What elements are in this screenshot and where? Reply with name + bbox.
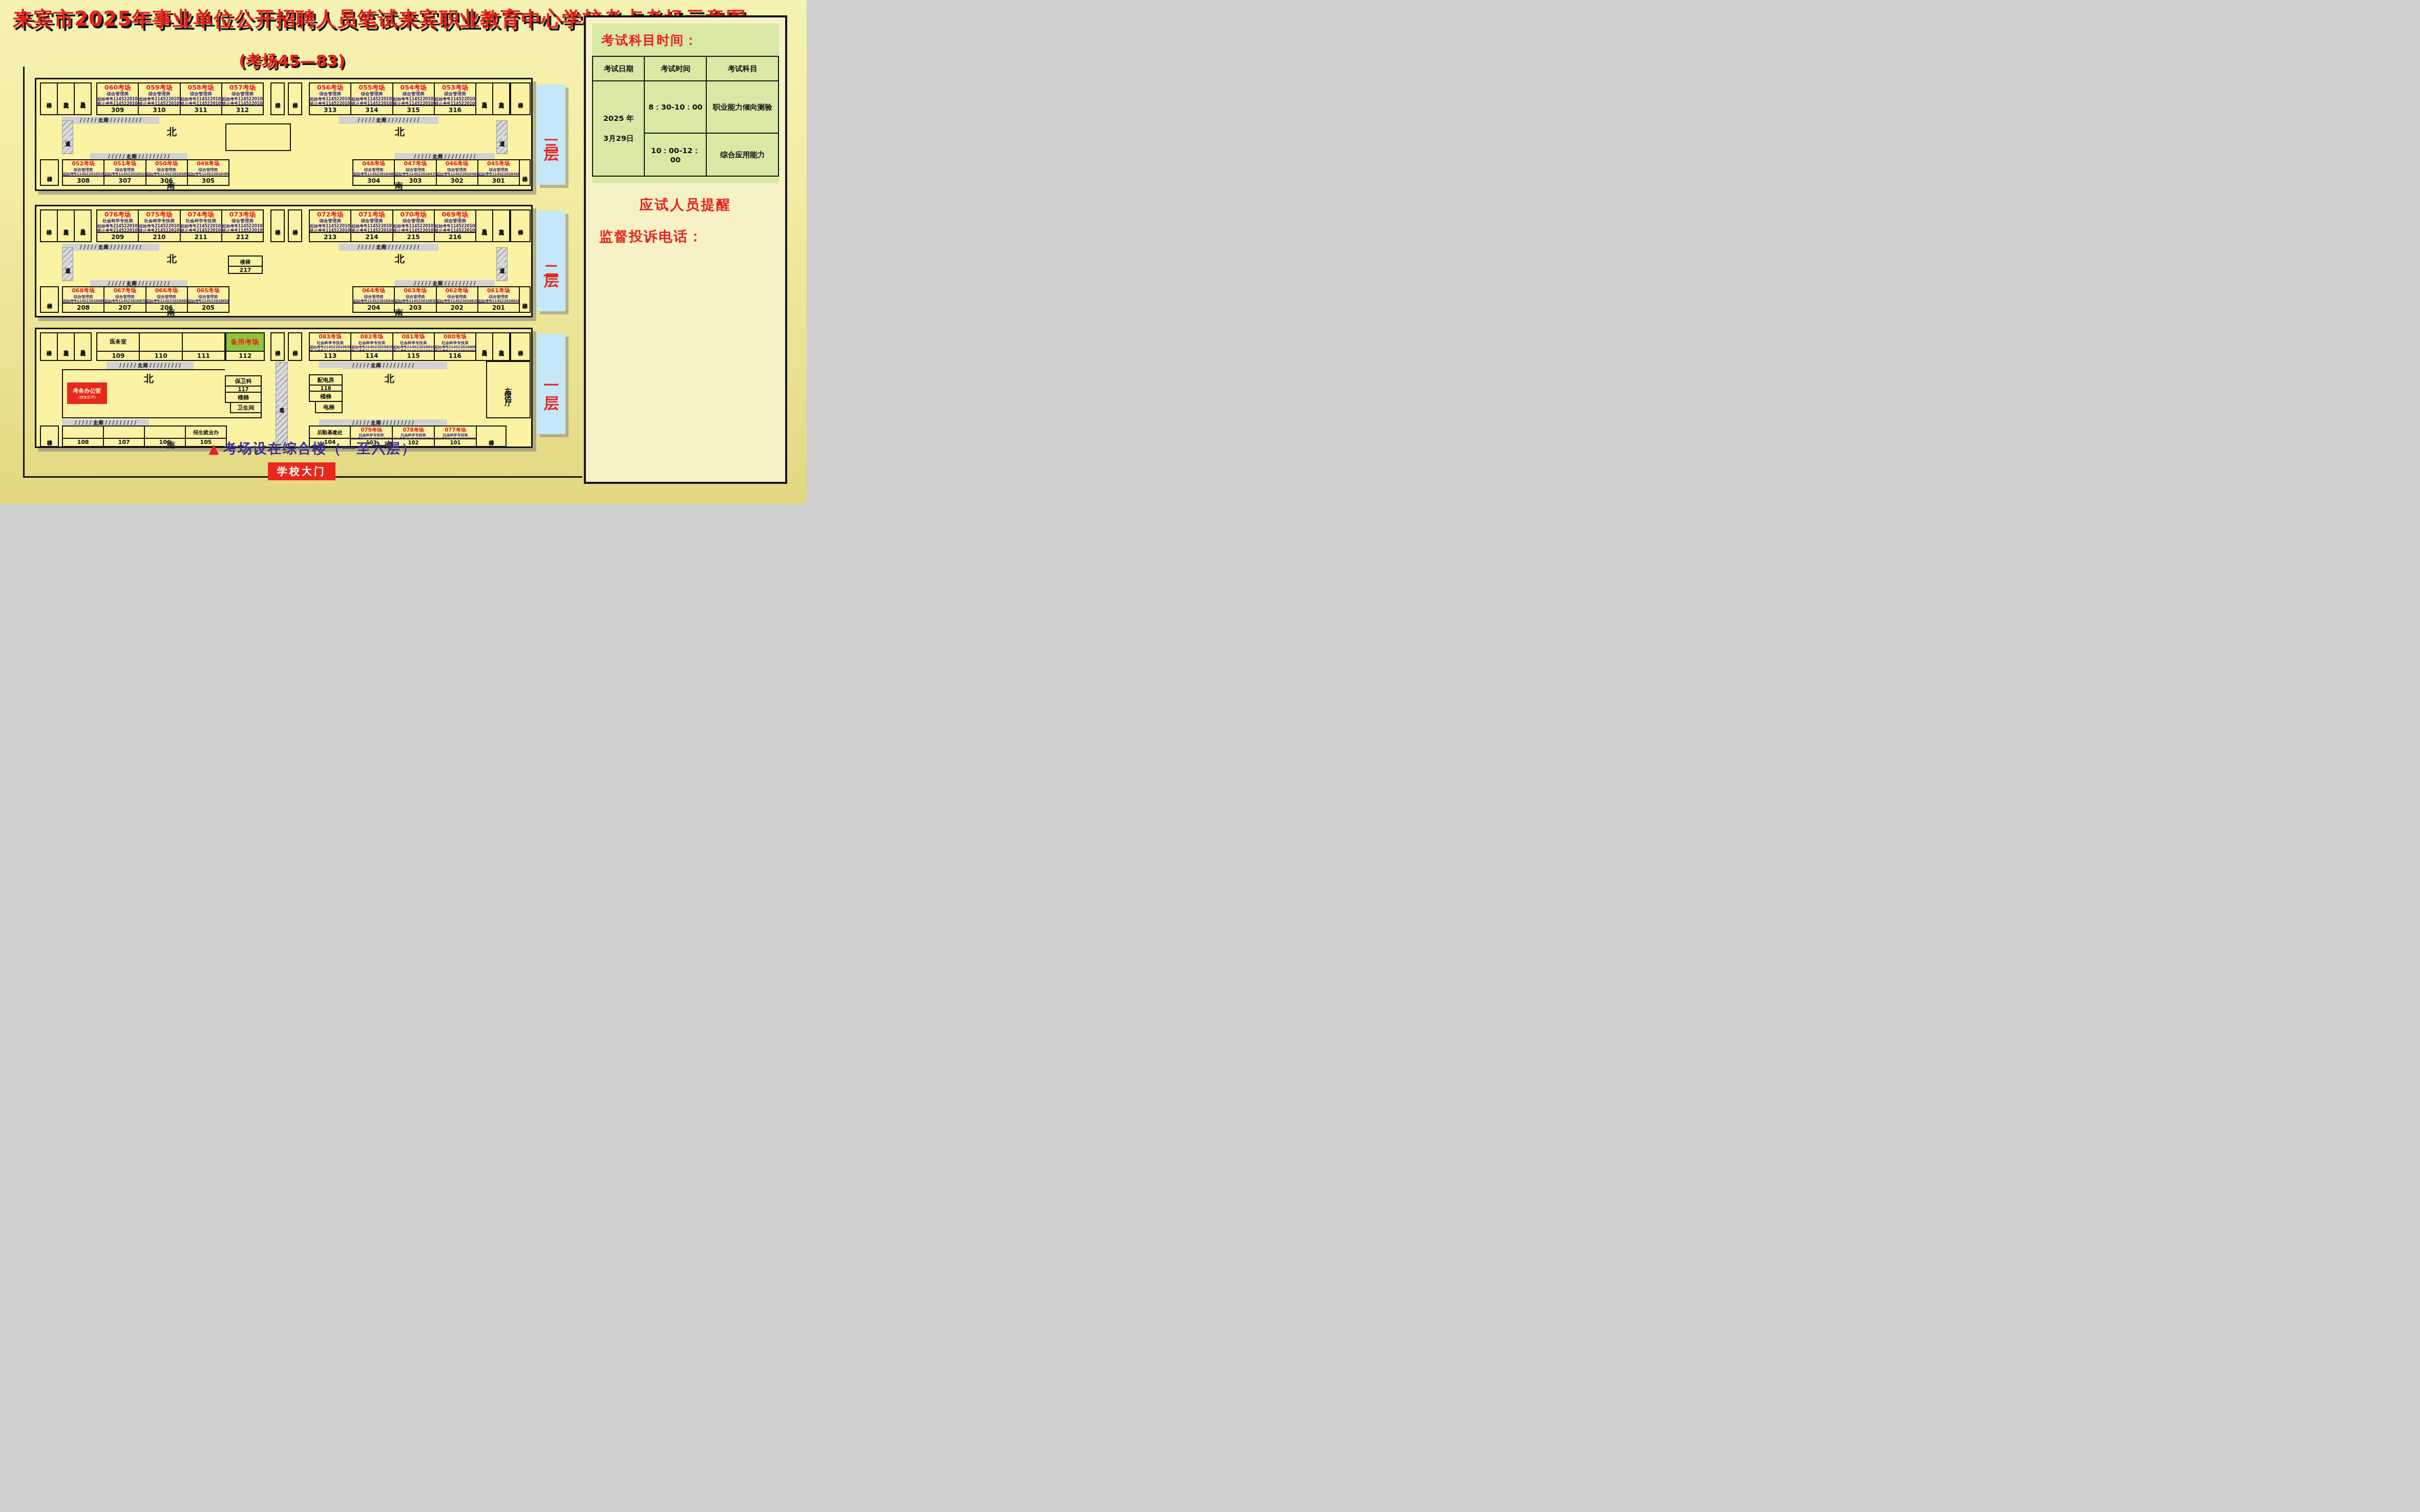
stairs-cell: 楼梯 (270, 332, 285, 361)
exam-room: 067考场 综合管理类 起始考号1145220106701 终止考号114522… (103, 286, 146, 313)
exam-room: 048考场 综合管理类 起始考号1145220104801 终止考号114522… (352, 159, 395, 186)
passage-label: 通道 (499, 136, 504, 139)
room-title: 070考场 (393, 211, 434, 218)
exam-room: 064考场 综合管理类 起始考号1145220106401 终止考号114522… (352, 286, 395, 313)
room-category: 社会科学专技类 (97, 218, 138, 223)
north-label: 北 (167, 252, 177, 266)
room-start-number: 起始考号2145220108101 (393, 345, 434, 349)
session-2-subject: 综合应用能力 (706, 133, 778, 176)
exam-date-cell: 2025 年 3月29日 (593, 81, 644, 176)
room-title: 066考场 (146, 288, 187, 294)
plain-room-label: 医务室 (97, 334, 139, 351)
toilet-label: 卫生间 (230, 402, 262, 413)
stairs-label: 楼梯 (275, 225, 280, 226)
exam-room-info: 065考场 综合管理类 起始考号1145220106501 终止考号114522… (188, 287, 228, 303)
exam-room: 052考场 综合管理类 起始考号1145220105201 终止考号114522… (62, 159, 104, 186)
corridor-strip: / / / / / 走廊 / / / / / / / / / (62, 117, 159, 124)
floor-1-tab-label: 一层 (541, 377, 562, 391)
stairs-cell: 楼梯 (270, 82, 285, 115)
toilet-male-cell: 男卫生间 (74, 209, 92, 242)
plain-room: 108 (62, 425, 104, 447)
stairs-label: 楼梯 (518, 225, 523, 226)
passage-shaft: 通道 (496, 120, 508, 154)
room-start-number: 起始考号1145220105301 (435, 97, 475, 102)
passage-shaft: 通道 (496, 247, 508, 281)
room-title: 072考场 (310, 211, 350, 218)
exam-office-box: 考务办公室 (西报告厅) (67, 382, 107, 404)
exam-room: 071考场 综合管理类 起始考号1145220107101 终止考号114522… (350, 209, 393, 242)
stairs-cell: 楼梯 (40, 82, 58, 115)
room-start-number: 起始考号1145220105701 (222, 97, 263, 102)
passage-label: 通道 (65, 263, 70, 266)
room-door-number: 113 (310, 351, 350, 360)
exam-room-info: 072考场 综合管理类 起始考号1145220107201 终止考号114522… (310, 210, 350, 232)
page-title: 来宾市2025年事业单位公开招聘人员笔试来宾职业教育中心学校考点考场示意图 (13, 5, 571, 33)
room-title: 064考场 (353, 288, 394, 294)
room-start-number: 起始考号1145220104901 (188, 172, 228, 176)
plain-room-label (183, 334, 224, 351)
room-start-number: 起始考号1145220106401 (353, 299, 394, 303)
exam-office-sublabel: (西报告厅) (67, 395, 107, 400)
exam-room: 054考场 综合管理类 起始考号1145220105401 终止考号114522… (392, 82, 435, 115)
room-door-number: 312 (222, 105, 263, 114)
room-end-number: 终止考号1145220105430 (393, 101, 434, 105)
room-start-number: 起始考号1145220106701 (104, 299, 145, 303)
room-title: 053考场 (435, 84, 475, 91)
room-door-number: 216 (435, 232, 475, 241)
room-door-number: 313 (310, 105, 350, 114)
exam-room-info: 070考场 综合管理类 起始考号1145220107001 终止考号114522… (393, 210, 434, 232)
room-category: 社会科学专技类 (139, 218, 179, 223)
room-start-number: 起始考号1145220107001 (393, 224, 434, 229)
passage-shaft: 通道 (62, 120, 73, 154)
room-start-number: 起始考号1145220105501 (351, 97, 392, 102)
room-end-number: 终止考号1145220107309 (222, 228, 263, 232)
f3-south-right-rooms: 048考场 综合管理类 起始考号1145220104801 终止考号114522… (352, 159, 520, 186)
toilet-female-cell: 女卫生间 (492, 209, 510, 242)
room-door-number: 211 (181, 232, 221, 241)
session-1-subject: 职业能力倾向测验 (706, 81, 778, 133)
school-gate-box: 学校大门 (268, 462, 335, 480)
room-door-number: 201 (478, 303, 519, 312)
room-category: 综合管理类 (146, 294, 187, 299)
room-title: 057考场 (222, 84, 263, 91)
north-label: 北 (167, 125, 177, 139)
corridor-strip: / / / / / 走廊 / / / / / / / / / (339, 117, 438, 124)
exam-room-info: 083考场 社会科学专技类 起始考号2145220108301 终止考号2145… (310, 333, 350, 351)
floor-2-tab-label: 二层 (541, 254, 562, 268)
plain-room-info: 后勤基建处 (310, 427, 350, 438)
exam-room: 061考场 综合管理类 起始考号1145220106101 终止考号114522… (477, 286, 520, 313)
exam-date-day: 3月29日 (595, 134, 642, 143)
f2-south-right-rooms: 064考场 综合管理类 起始考号1145220106401 终止考号114522… (352, 286, 520, 313)
room-door-number: 114 (351, 351, 392, 360)
stairs-label: 楼梯 (292, 98, 298, 99)
room-end-number: 终止考号1145220105630 (310, 101, 350, 105)
stairs-cell: 楼梯 (510, 209, 531, 242)
f1-north-plain-rooms: 医务室 109 110 111 (96, 332, 225, 361)
exam-room: 083考场 社会科学专技类 起始考号2145220108301 终止考号2145… (309, 332, 351, 361)
room-door-number: 214 (351, 232, 392, 241)
exam-room: 069考场 综合管理类 起始考号1145220106901 终止考号114522… (434, 209, 476, 242)
room-category: 综合管理类 (222, 91, 263, 96)
room-title: 048考场 (353, 161, 394, 167)
toilet-female-label: 女卫生间 (64, 225, 69, 227)
building-floor-3: 楼梯 女卫生间 男卫生间 060考场 综合管理类 起始考号11452201060… (35, 78, 533, 191)
center-stairs-label: 楼梯 (228, 255, 263, 267)
room-category: 综合管理类 (437, 167, 477, 172)
room-start-number: 起始考号1145220106001 (97, 97, 138, 102)
exam-room: 055考场 综合管理类 起始考号1145220105501 终止考号114522… (350, 82, 393, 115)
room-category: 综合管理类 (188, 294, 228, 299)
floor-3-tab-label: 三层 (541, 127, 562, 142)
room-door-number: 107 (104, 438, 144, 446)
room-door-number: 112 (226, 351, 264, 360)
room-title: 080考场 (435, 334, 475, 340)
exam-room-info: 078考场 社会科学专技类 起始考号2145220107801 终止考号2145… (393, 427, 434, 438)
exam-room: 049考场 综合管理类 起始考号1145220104901 终止考号114522… (187, 159, 229, 186)
floor-1-tab: 一层 (537, 334, 565, 434)
room-end-number: 终止考号1145220105330 (435, 101, 475, 105)
south-label: 南 (167, 181, 175, 191)
room-title: 054考场 (393, 84, 434, 91)
room-category: 综合管理类 (310, 218, 350, 223)
hotline-title: 监督投诉电话： (599, 227, 785, 246)
toilet-male-cell: 男卫生间 (475, 332, 493, 361)
stairs-label: 楼梯 (47, 172, 52, 173)
room-start-number: 起始考号1145220104501 (478, 172, 519, 176)
toilet-male-label: 男卫生间 (482, 346, 487, 348)
room-title: 052考场 (63, 161, 103, 167)
room-title: 071考场 (351, 211, 392, 218)
exam-room-info: 076考场 社会科学专技类 起始考号2145220107601 终止考号2145… (97, 210, 138, 232)
f1-backup-room: 备用考场 112 (225, 332, 265, 361)
building-floor-2: 楼梯 女卫生间 男卫生间 076考场 社会科学专技类 起始考号214522010… (35, 205, 533, 317)
exam-room: 082考场 社会科学专技类 起始考号2145220108201 终止考号2145… (350, 332, 393, 361)
f1-security-column: 保卫科 117 楼梯 卫生间 (225, 369, 262, 413)
f1-north-right-rooms: 083考场 社会科学专技类 起始考号2145220108301 终止考号2145… (309, 332, 476, 361)
exam-room-info: 051考场 综合管理类 起始考号1145220105101 终止考号114522… (104, 160, 145, 176)
building-floor-1: 楼梯 女卫生间 男卫生间 医务室 109 110 111 (35, 328, 533, 448)
toilet-male-label: 男卫生间 (80, 98, 86, 100)
passage-label: 通道 (65, 136, 70, 139)
room-door-number: 115 (393, 351, 434, 360)
toilet-female-cell: 女卫生间 (57, 332, 75, 361)
session-1-time: 8：30-10：00 (644, 81, 706, 133)
room-door-number: 209 (97, 232, 138, 241)
exam-room-info: 054考场 综合管理类 起始考号1145220105401 终止考号114522… (393, 83, 434, 105)
plain-room-info: 招生就业办 (186, 427, 226, 438)
exam-room: 062考场 综合管理类 起始考号1145220106201 终止考号114522… (436, 286, 478, 313)
plain-room-info (140, 333, 181, 351)
room-category: 综合管理类 (393, 91, 434, 96)
exam-room-info: 082考场 社会科学专技类 起始考号2145220108201 终止考号2145… (351, 333, 392, 351)
room-title: 049考场 (188, 161, 228, 167)
exam-room-info: 080考场 社会科学专技类 起始考号2145220108001 终止考号2145… (435, 333, 475, 351)
room-start-number: 起始考号1145220105401 (393, 97, 434, 102)
exam-room-info: 061考场 综合管理类 起始考号1145220106101 终止考号114522… (478, 287, 519, 303)
exam-room: 070考场 综合管理类 起始考号1145220107001 终止考号114522… (392, 209, 435, 242)
room-start-number: 起始考号1145220104801 (353, 172, 394, 176)
stairs-label: 楼梯 (47, 436, 52, 437)
plain-room-info (183, 333, 224, 351)
room-start-number: 起始考号2145220108301 (310, 345, 350, 349)
exam-room: 058考场 综合管理类 起始考号1145220105801 终止考号114522… (180, 82, 222, 115)
room-title: 074考场 (181, 211, 221, 218)
room-door-number: 307 (104, 176, 145, 185)
south-label: 南 (395, 181, 403, 191)
room-door-number: 212 (222, 232, 263, 241)
exam-room-info: 066考场 综合管理类 起始考号1145220106601 终止考号114522… (146, 287, 187, 303)
room-door-number: 301 (478, 176, 519, 185)
exam-room-info: 067考场 综合管理类 起始考号1145220106701 终止考号114522… (104, 287, 145, 303)
room-door-number: 213 (310, 232, 350, 241)
stairs-cell: 楼梯 (510, 332, 531, 361)
exam-room: 081考场 社会科学专技类 起始考号2145220108101 终止考号2145… (392, 332, 435, 361)
schedule-table: 考试日期 考试时间 考试科目 2025 年 3月29日 8：30-10：00 职… (592, 56, 779, 177)
col-header-subject: 考试科目 (706, 56, 778, 81)
plain-room-label (140, 334, 181, 351)
room-title: 081考场 (393, 334, 434, 340)
toilet-female-label: 女卫生间 (499, 346, 504, 348)
walkway-shaft: 走道 (276, 362, 288, 445)
room-title: 082考场 (351, 334, 392, 340)
room-end-number: 终止考号1145220107030 (393, 228, 434, 232)
stairs-label: 楼梯 (518, 346, 523, 347)
room-category: 综合管理类 (181, 91, 221, 96)
exam-room: 074考场 社会科学专技类 起始考号2145220107401 终止考号2145… (180, 209, 222, 242)
room-end-number: 终止考号1145220105830 (181, 101, 221, 105)
exam-room-info: 062考场 综合管理类 起始考号1145220106201 终止考号114522… (437, 287, 477, 303)
notice-title: 应试人员提醒 (586, 196, 785, 214)
room-title: 077考场 (435, 427, 476, 433)
stairs-label: 楼梯 (522, 299, 528, 300)
plain-room: 医务室 109 (96, 332, 140, 361)
toilet-female-label: 女卫生间 (64, 98, 69, 100)
f2-north-right-rooms: 072考场 综合管理类 起始考号1145220107201 终止考号114522… (309, 209, 476, 242)
plain-room-info: 医务室 (97, 333, 139, 351)
plain-room-label (145, 427, 185, 438)
exam-room-info: 047考场 综合管理类 起始考号1145220104701 终止考号114522… (395, 160, 435, 176)
room-category: 综合管理类 (310, 91, 350, 96)
south-label: 南 (167, 308, 175, 318)
room-door-number: 308 (63, 176, 103, 185)
stairs-cell: 楼梯 (288, 332, 302, 361)
plain-room: 110 (139, 332, 182, 361)
room-title: 050考场 (146, 161, 187, 167)
room-title: 083考场 (310, 334, 350, 340)
plain-room-label (63, 427, 103, 438)
security-office-label: 保卫科 (225, 375, 262, 387)
room-category: 社会科学专技类 (181, 218, 221, 223)
stairs-label: 楼梯 (518, 98, 523, 99)
room-title: 067考场 (104, 288, 145, 294)
east-hall: 东报告厅 (486, 361, 531, 418)
floor-3-tab: 三层 (537, 84, 565, 185)
room-category: 综合管理类 (478, 167, 519, 172)
room-door-number: 305 (188, 176, 228, 185)
room-category: 综合管理类 (104, 167, 145, 172)
room-start-number: 起始考号1145220106901 (435, 224, 475, 229)
f3-north-left-rooms: 060考场 综合管理类 起始考号1145220106001 终止考号114522… (96, 82, 264, 115)
room-door-number: 302 (437, 176, 477, 185)
walkway-label: 走道 (279, 402, 284, 405)
toilet-female-cell: 女卫生间 (492, 82, 510, 115)
room-category: 综合管理类 (139, 91, 179, 96)
room-start-number: 起始考号1145220104601 (437, 172, 477, 176)
room-end-number: 终止考号1145220105530 (351, 101, 392, 105)
exam-room-info: 074考场 社会科学专技类 起始考号2145220107401 终止考号2145… (181, 210, 221, 232)
exam-room-info: 071考场 综合管理类 起始考号1145220107101 终止考号114522… (351, 210, 392, 232)
exam-room-info: 060考场 综合管理类 起始考号1145220106001 终止考号114522… (97, 83, 138, 105)
room-start-number: 起始考号1145220107301 (222, 224, 263, 229)
exam-room-info: 077考场 社会科学专技类 起始考号2145220107701 终止考号2145… (435, 427, 476, 438)
room-start-number: 起始考号1145220106801 (63, 299, 103, 303)
toilet-female-cell: 女卫生间 (57, 209, 75, 242)
exam-room: 056考场 综合管理类 起始考号1145220105601 终止考号114522… (309, 82, 351, 115)
f2-center-stairs: 楼梯 217 (228, 257, 263, 274)
room-category: 综合管理类 (435, 91, 475, 96)
room-door-number: 204 (353, 303, 394, 312)
toilet-male-label: 男卫生间 (482, 225, 487, 227)
room-door-number: 215 (393, 232, 434, 241)
map-frame-left-line (23, 67, 25, 477)
room-category: 综合管理类 (435, 218, 475, 223)
f3-south-left-rooms: 052考场 综合管理类 起始考号1145220105201 终止考号114522… (62, 159, 229, 186)
toilet-male-cell: 男卫生间 (74, 82, 92, 115)
room-start-number: 起始考号2145220107501 (139, 224, 179, 229)
room-category: 综合管理类 (63, 167, 103, 172)
room-door-number: 108 (63, 438, 103, 446)
stairs-label: 楼梯 (275, 346, 280, 347)
stairs-cell: 楼梯 (40, 286, 59, 313)
stairs-label: 楼梯 (47, 299, 52, 300)
backup-room-label: 备用考场 (226, 334, 264, 351)
room-end-number: 终止考号1145220107130 (351, 228, 392, 232)
room-title: 047考场 (395, 161, 435, 167)
room-start-number: 起始考号2145220107601 (97, 224, 138, 229)
schedule-title: 考试科目时间： (601, 32, 779, 49)
toilet-female-cell: 女卫生间 (57, 82, 75, 115)
stairs-label: 楼梯 (275, 98, 280, 99)
f2-south-left-rooms: 068考场 综合管理类 起始考号1145220106801 终止考号114522… (62, 286, 229, 313)
stairs-cell: 楼梯 (288, 82, 302, 115)
stairs-cell: 楼梯 (40, 159, 59, 186)
exam-room: 072考场 综合管理类 起始考号1145220107201 终止考号114522… (309, 209, 351, 242)
toilet-male-cell: 男卫生间 (475, 209, 493, 242)
room-end-number: 终止考号2145220107630 (97, 228, 138, 232)
room-door-number: 110 (140, 351, 181, 360)
exam-room-info: 059考场 综合管理类 起始考号1145220105901 终止考号114522… (139, 83, 179, 105)
exam-room: 051考场 综合管理类 起始考号1145220105101 终止考号114522… (103, 159, 146, 186)
room-start-number: 起始考号1145220105601 (310, 97, 350, 102)
stairs-cell: 楼梯 (476, 425, 507, 447)
exam-room-info: 063考场 综合管理类 起始考号1145220106301 终止考号114522… (395, 287, 435, 303)
room-start-number: 起始考号1145220107201 (310, 224, 350, 229)
room-category: 综合管理类 (222, 218, 263, 223)
toilet-male-label: 男卫生间 (80, 225, 86, 227)
stairs-label: 楼梯 (225, 392, 262, 403)
passage-label: 通道 (499, 263, 504, 266)
room-door-number: 314 (351, 105, 392, 114)
exam-date-year: 2025 年 (595, 114, 642, 123)
exam-room-info: 064考场 综合管理类 起始考号1145220106401 终止考号114522… (353, 287, 394, 303)
room-start-number: 起始考号1145220106601 (146, 299, 187, 303)
room-category: 综合管理类 (188, 167, 228, 172)
f3-north-right-rooms: 056考场 综合管理类 起始考号1145220105601 终止考号114522… (309, 82, 476, 115)
exam-room-info: 056考场 综合管理类 起始考号1145220105601 终止考号114522… (310, 83, 350, 105)
east-hall-label: 东报告厅 (504, 381, 513, 398)
plain-room: 111 (182, 332, 225, 361)
plain-room: 107 (103, 425, 145, 447)
room-end-number: 终止考号2145220107430 (181, 228, 221, 232)
room-start-number: 起始考号1145220105901 (139, 97, 179, 102)
corridor-strip: / / / / / 走廊 / / / / / / / / / (107, 362, 194, 369)
exam-room-info: 049考场 综合管理类 起始考号1145220104901 终止考号114522… (188, 160, 228, 176)
center-bay (225, 123, 291, 151)
room-title: 078考场 (393, 427, 434, 433)
exam-room: 075考场 社会科学专技类 起始考号2145220107501 终止考号2145… (138, 209, 180, 242)
passage-shaft: 通道 (62, 247, 73, 281)
room-end-number: 终止考号1145220105730 (222, 101, 263, 105)
room-title: 073考场 (222, 211, 263, 218)
f1-power-column: 配电房 118 楼梯 电梯 (309, 369, 343, 413)
exam-room: 046考场 综合管理类 起始考号1145220104601 终止考号114522… (436, 159, 478, 186)
room-category: 综合管理类 (146, 167, 187, 172)
session-2-time: 10：00-12：00 (644, 133, 706, 176)
backup-room: 备用考场 112 (225, 332, 265, 361)
room-end-number: 终止考号1145220106930 (435, 228, 475, 232)
room-category: 综合管理类 (353, 167, 394, 172)
exam-room-info: 053考场 综合管理类 起始考号1145220105301 终止考号114522… (435, 83, 475, 105)
poster-canvas: 来宾市2025年事业单位公开招聘人员笔试来宾职业教育中心学校考点考场示意图 (考… (0, 0, 807, 504)
room-category: 综合管理类 (395, 167, 435, 172)
exam-room-info: 075考场 社会科学专技类 起始考号2145220107501 终止考号2145… (139, 210, 179, 232)
f2-north-left-rooms: 076考场 社会科学专技类 起始考号2145220107601 终止考号2145… (96, 209, 264, 242)
stairs-label: 楼梯 (522, 172, 528, 173)
room-door-number: 208 (63, 303, 103, 312)
stairs-label: 楼梯 (489, 436, 494, 437)
col-header-time: 考试时间 (644, 56, 706, 81)
toilet-female-label: 女卫生间 (499, 225, 504, 227)
room-category: 综合管理类 (351, 218, 392, 223)
schedule-panel: 考试科目时间： 考试日期 考试时间 考试科目 2025 年 3月29日 8：30… (592, 24, 779, 183)
exam-room-info: 069考场 综合管理类 起始考号1145220106901 终止考号114522… (435, 210, 475, 232)
stairs-cell: 楼梯 (270, 209, 285, 242)
exam-room: 068考场 综合管理类 起始考号1145220106801 终止考号114522… (62, 286, 104, 313)
room-start-number: 起始考号1145220106101 (478, 299, 519, 303)
exam-room-info: 073考场 综合管理类 起始考号1145220107301 终止考号114522… (222, 210, 263, 232)
room-start-number: 起始考号1145220105801 (181, 97, 221, 102)
room-end-number: 终止考号2145220107530 (139, 228, 179, 232)
room-title: 046考场 (437, 161, 477, 167)
room-end-number: 终止考号1145220105930 (139, 101, 179, 105)
room-door-number: 109 (97, 351, 139, 360)
room-end-number: 终止考号1145220106030 (97, 101, 138, 105)
room-title: 079考场 (351, 427, 392, 433)
exam-room-info: 058考场 综合管理类 起始考号1145220105801 终止考号114522… (181, 83, 221, 105)
stairs-cell: 楼梯 (510, 82, 531, 115)
plain-room-label (104, 427, 144, 438)
room-category: 社会科学专技类 (351, 340, 392, 345)
floor-2-tab: 二层 (537, 211, 565, 311)
room-start-number: 起始考号1145220106301 (395, 299, 435, 303)
room-title: 060考场 (97, 84, 138, 91)
room-start-number: 起始考号1145220104701 (395, 172, 435, 176)
room-title: 058考场 (181, 84, 221, 91)
center-stairs-number: 217 (228, 266, 263, 274)
room-title: 056考场 (310, 84, 350, 91)
